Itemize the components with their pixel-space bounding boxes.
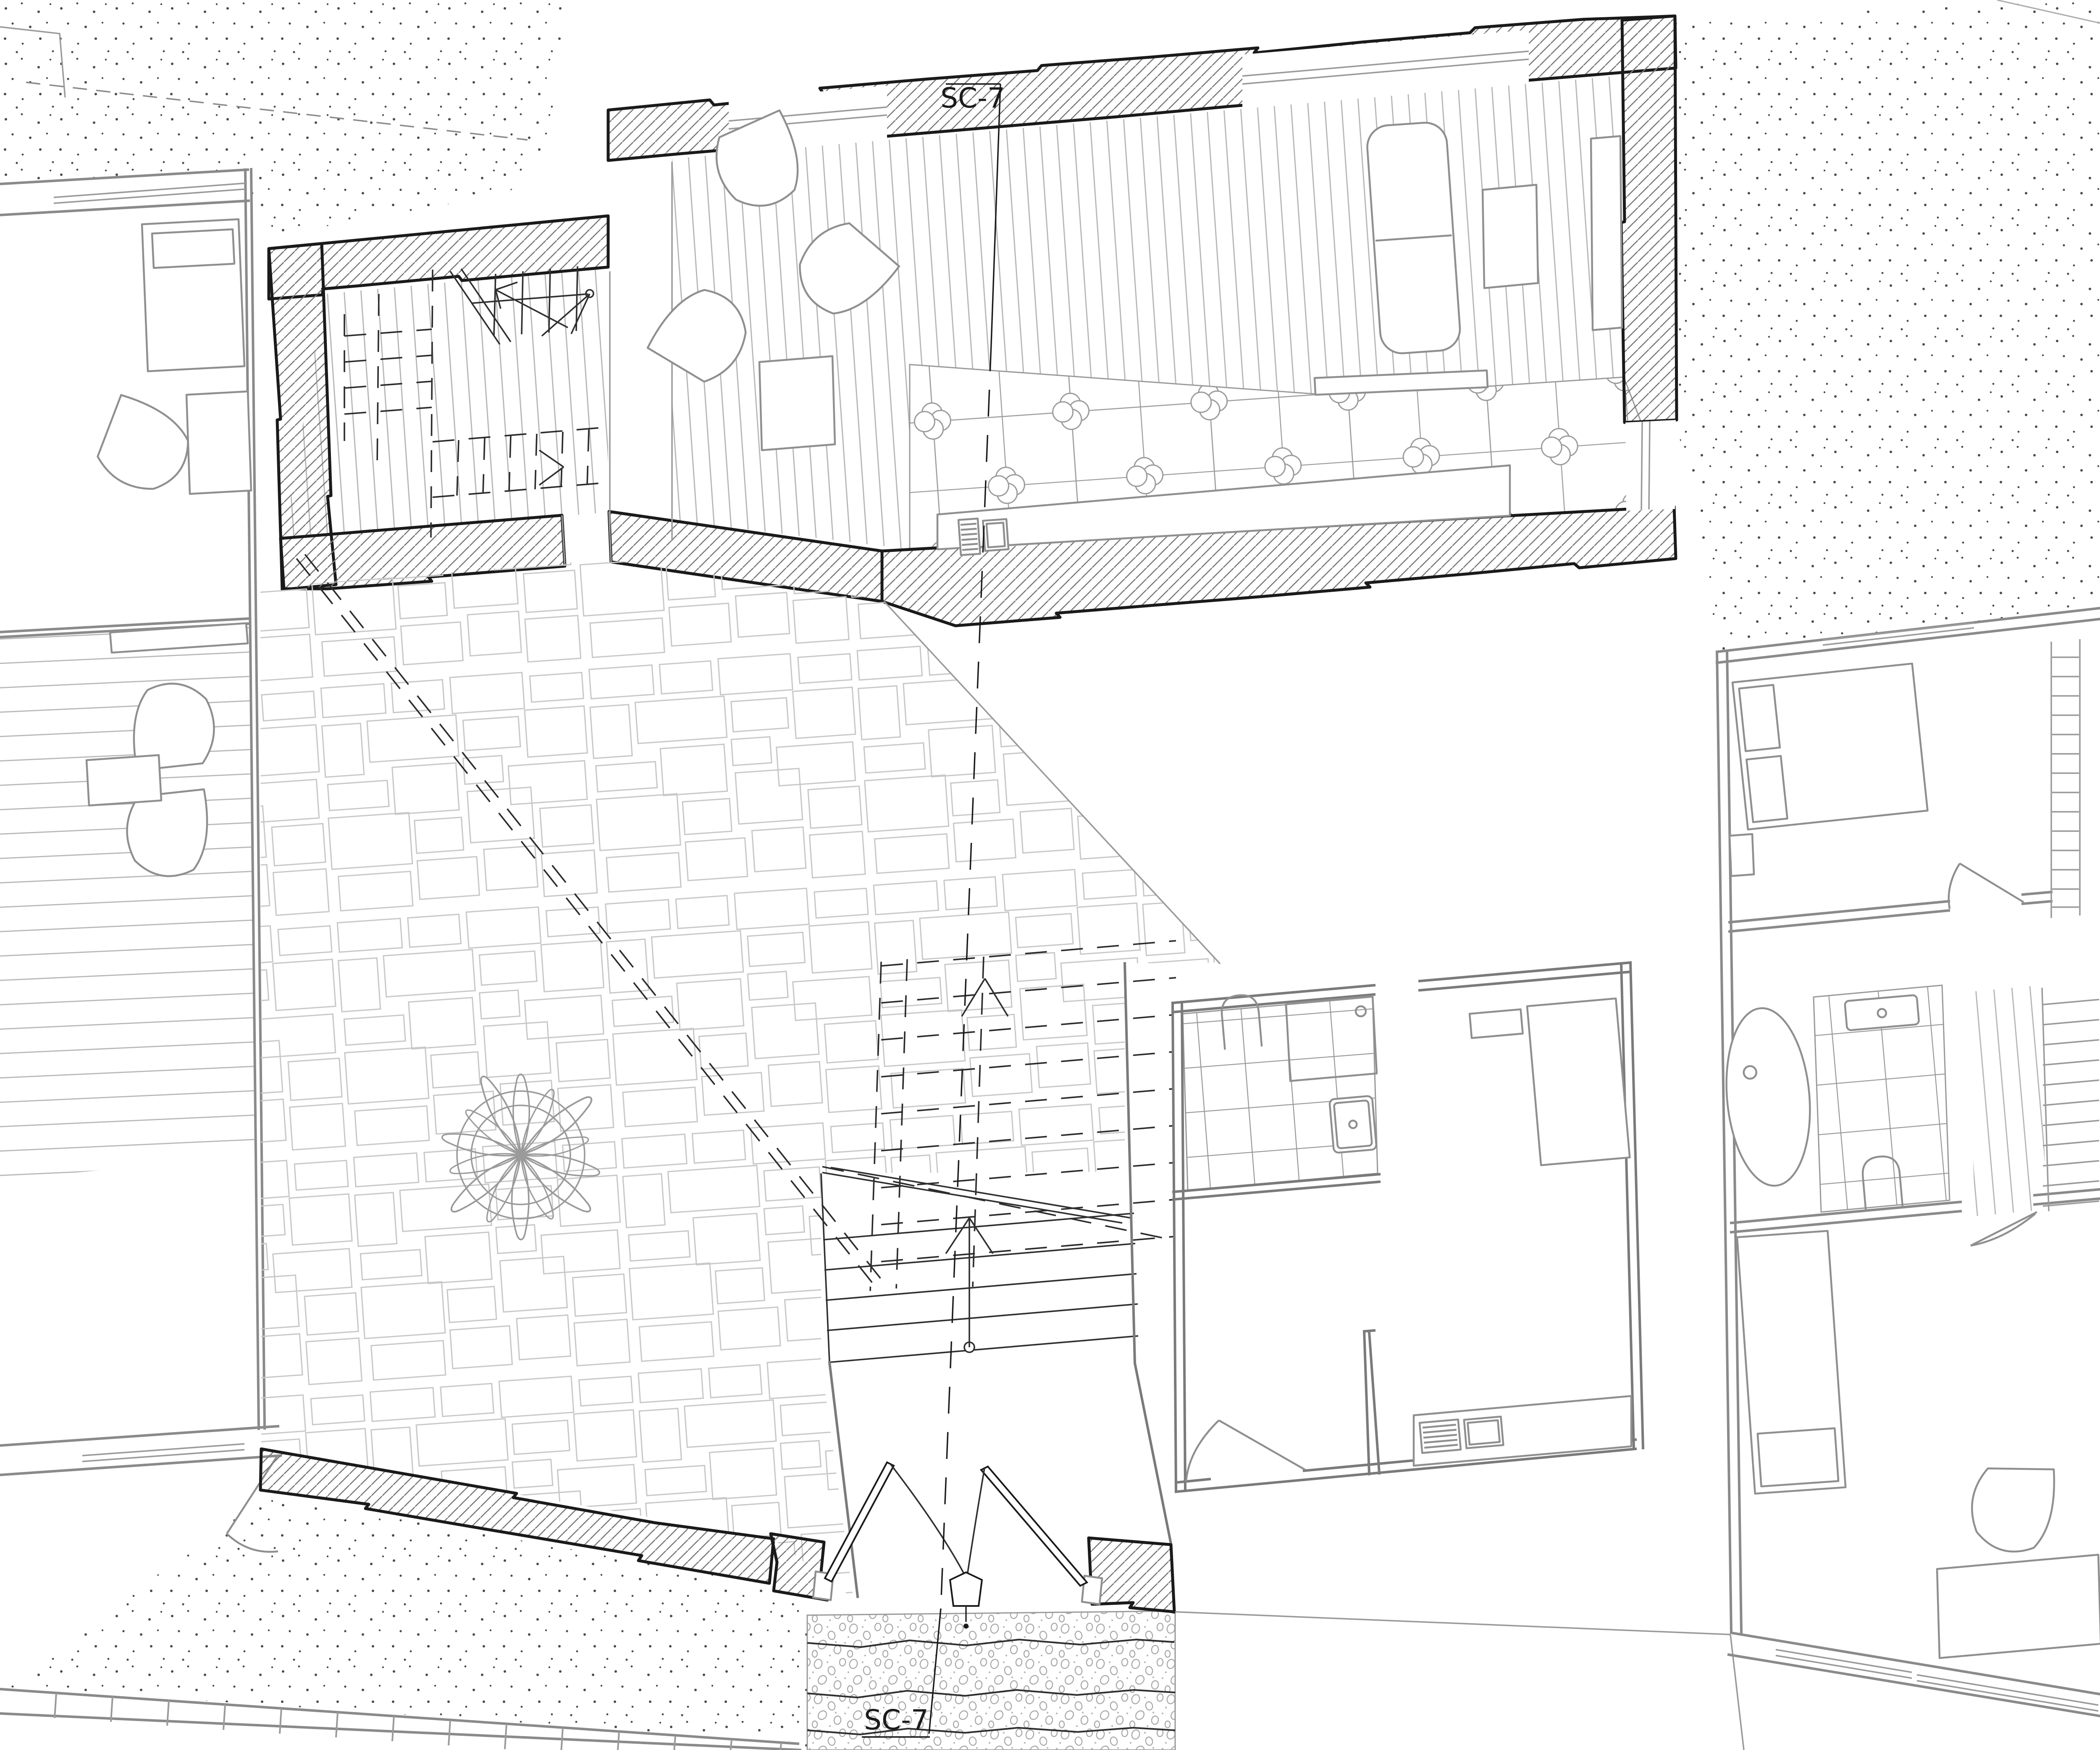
central-bathroom-floor	[1183, 997, 1378, 1190]
main-right-wall	[1621, 16, 1677, 422]
table	[759, 356, 835, 450]
sink-icon	[1329, 1096, 1377, 1153]
floor-plan-canvas: SC-7 SC-7	[0, 0, 2100, 1750]
desk	[186, 391, 251, 494]
right-corridor-floor	[1968, 985, 2046, 1216]
gate-pier-right	[1089, 1538, 1174, 1612]
boundary-line-right	[1175, 1612, 1744, 1750]
right-building	[1717, 608, 2100, 1716]
stair-hall-floor	[284, 267, 608, 539]
bed	[1732, 664, 1927, 829]
left-living-floor	[0, 625, 255, 1180]
ground-stipple-top-right	[1625, 0, 2100, 650]
entrance-gravel-steps	[807, 1611, 1175, 1750]
central-unit	[1173, 963, 1643, 1493]
courtyard	[260, 554, 1220, 1598]
section-label-bottom: SC-7	[864, 1704, 929, 1736]
sink-icon	[1845, 995, 1919, 1031]
bed	[1527, 998, 1630, 1165]
left-building	[0, 169, 283, 1552]
desk	[1937, 1555, 2100, 1658]
bedside-rug	[1483, 185, 1538, 288]
gate-keystone	[950, 1572, 982, 1606]
floor-plan-page: SC-7 SC-7	[0, 0, 2100, 1750]
lower-flight-steps	[821, 1168, 1138, 1362]
nightstand	[1730, 834, 1754, 876]
bed	[1737, 1231, 1845, 1494]
section-label-top: SC-7	[940, 82, 1005, 114]
bed-pillow	[152, 229, 234, 268]
table	[87, 755, 161, 805]
lower-flight-arrow	[946, 1218, 993, 1352]
bed-pillow	[1470, 1009, 1523, 1038]
wardrobe	[1591, 136, 1622, 330]
